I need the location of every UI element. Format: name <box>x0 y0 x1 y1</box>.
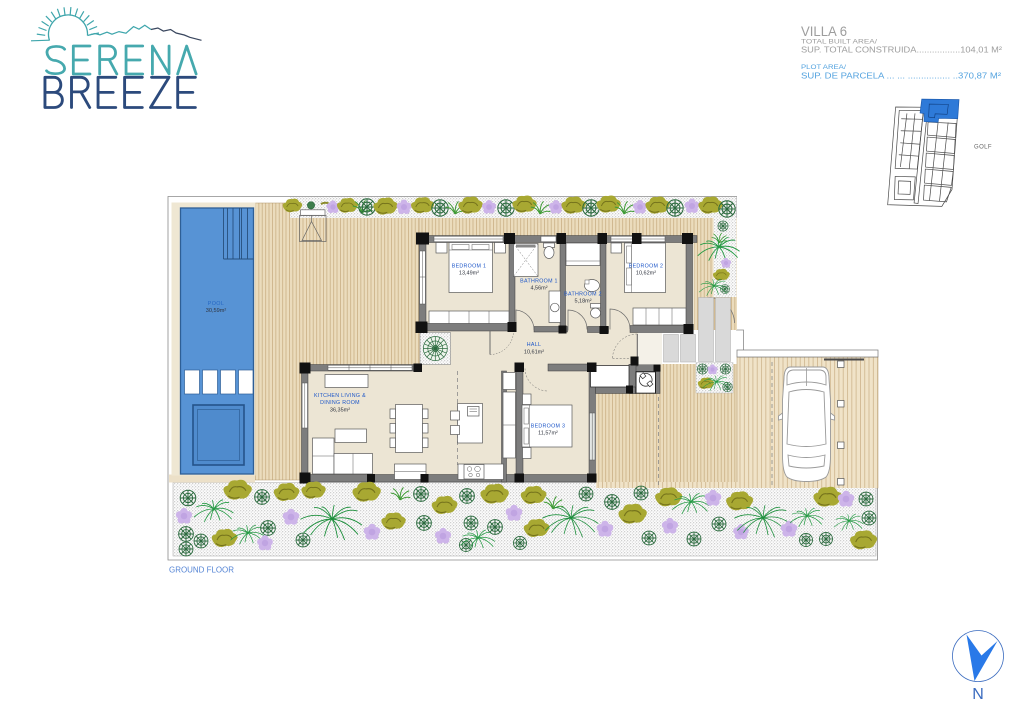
svg-text:10,61m²: 10,61m² <box>524 350 544 356</box>
svg-text:DINING ROOM: DINING ROOM <box>320 400 360 406</box>
svg-text:10,62m²: 10,62m² <box>636 271 656 277</box>
svg-text:13,49m²: 13,49m² <box>459 271 479 277</box>
svg-text:BEDROOM 3: BEDROOM 3 <box>531 424 566 430</box>
svg-text:N: N <box>972 686 984 703</box>
svg-text:4,56m²: 4,56m² <box>530 286 547 292</box>
svg-text:5,18m²: 5,18m² <box>574 299 591 305</box>
svg-text:BATHROOM 1: BATHROOM 1 <box>520 279 558 285</box>
svg-text:BATHROOM 2: BATHROOM 2 <box>564 292 602 298</box>
svg-text:HALL: HALL <box>527 342 541 348</box>
svg-text:POOL: POOL <box>208 301 225 307</box>
svg-text:SUP. DE PARCELA ... ... .....: SUP. DE PARCELA ... ... ................… <box>801 71 1001 81</box>
svg-text:GROUND FLOOR: GROUND FLOOR <box>169 565 234 575</box>
svg-text:GOLF: GOLF <box>974 145 992 151</box>
svg-text:11,57m²: 11,57m² <box>538 431 558 437</box>
svg-text:SUP. TOTAL CONSTRUIDA.........: SUP. TOTAL CONSTRUIDA.................10… <box>801 45 1002 55</box>
svg-text:36,35m²: 36,35m² <box>330 408 350 414</box>
svg-text:VILLA 6: VILLA 6 <box>801 23 847 39</box>
svg-text:BEDROOM 1: BEDROOM 1 <box>452 264 487 270</box>
svg-text:BEDROOM 2: BEDROOM 2 <box>629 264 664 270</box>
svg-text:30,59m²: 30,59m² <box>206 308 227 314</box>
svg-text:KITCHEN LIVING &: KITCHEN LIVING & <box>314 393 366 399</box>
